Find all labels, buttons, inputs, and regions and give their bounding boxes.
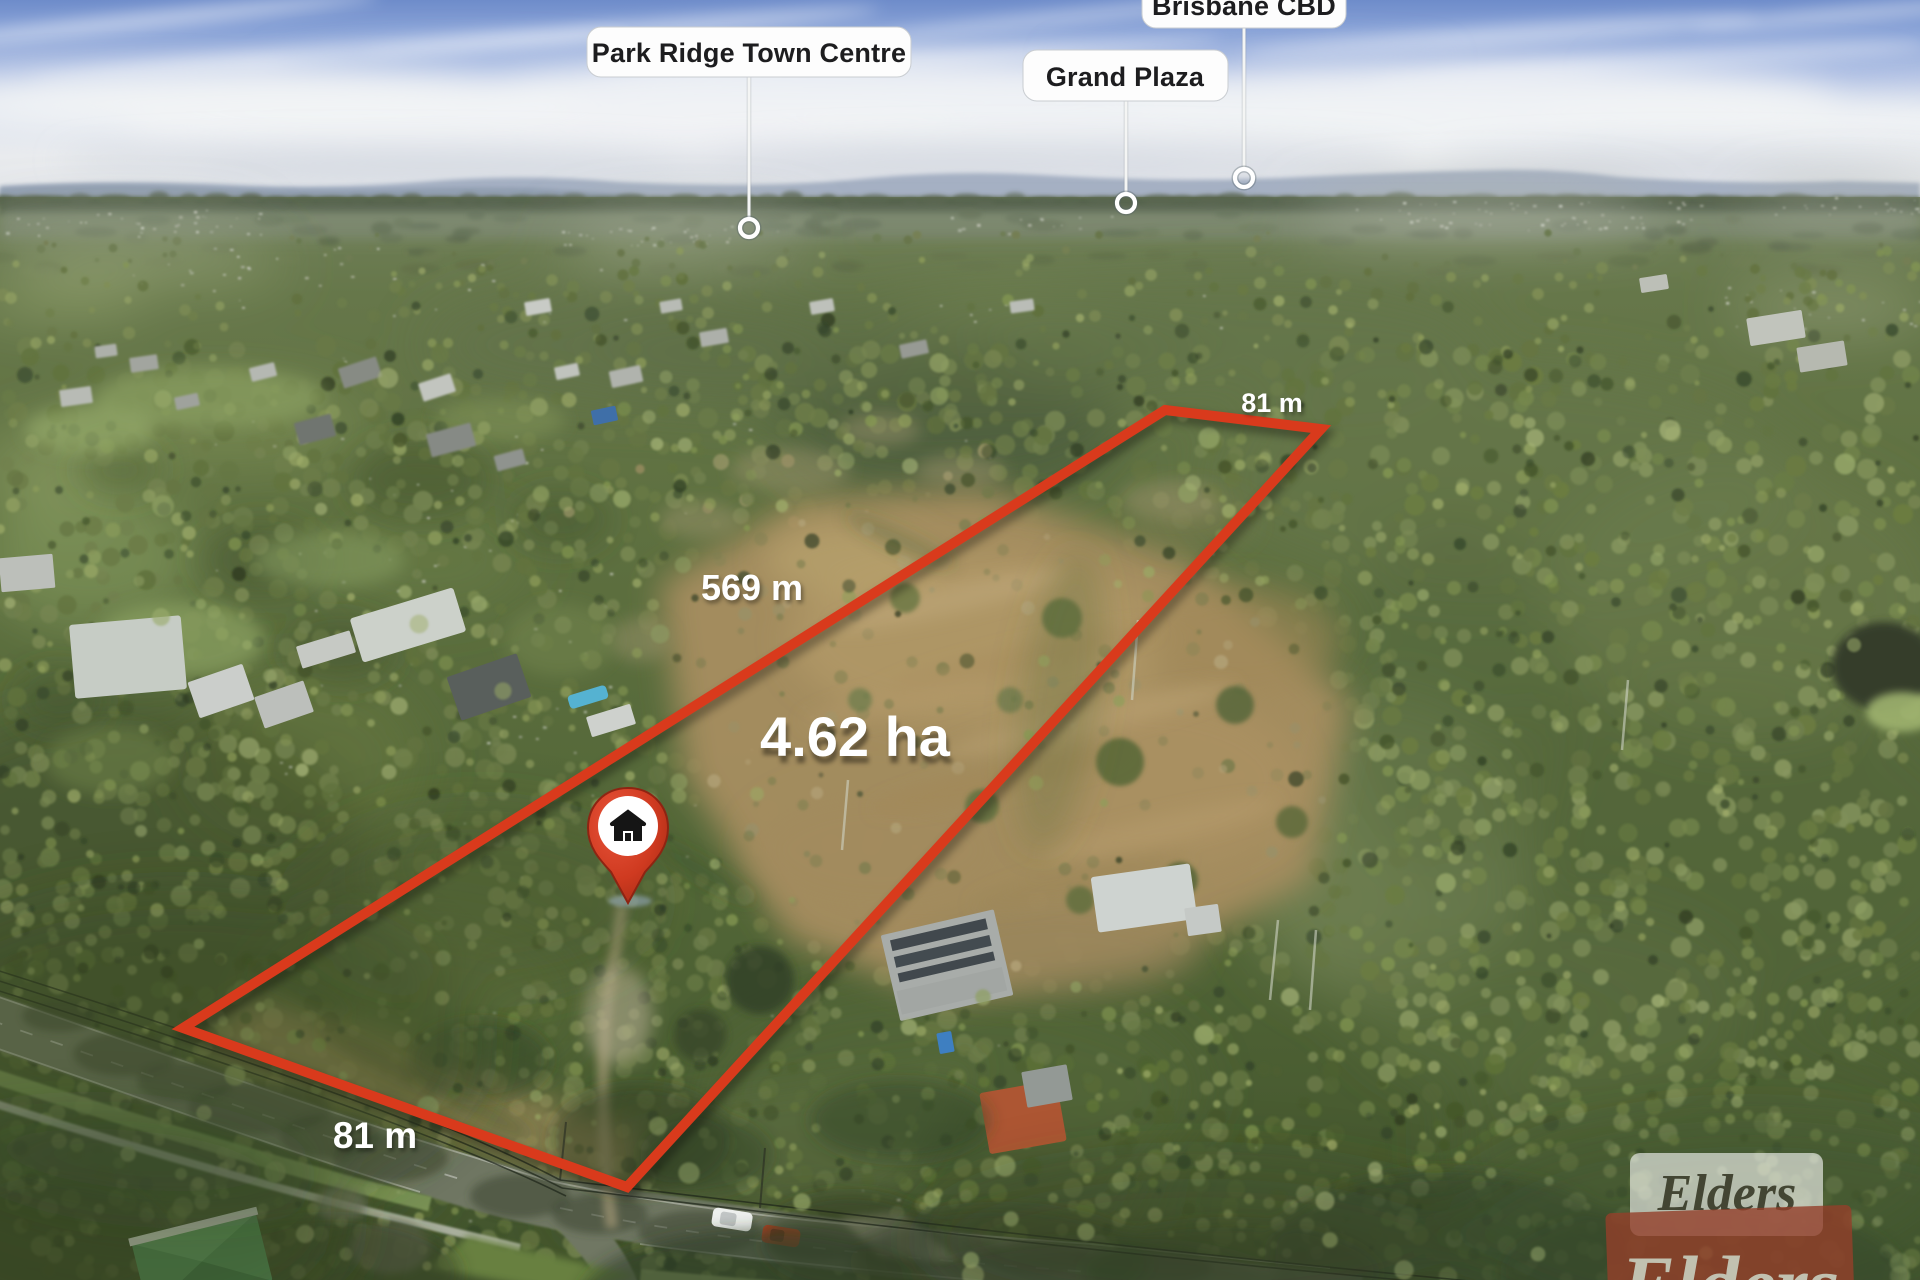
svg-text:Brisbane CBD: Brisbane CBD (1152, 0, 1336, 21)
svg-text:Park Ridge Town Centre: Park Ridge Town Centre (592, 38, 906, 68)
svg-text:Grand Plaza: Grand Plaza (1046, 62, 1205, 92)
svg-text:81 m: 81 m (333, 1115, 417, 1156)
svg-text:4.62 ha: 4.62 ha (760, 705, 951, 768)
svg-text:569 m: 569 m (701, 567, 803, 608)
svg-text:Elders: Elders (1620, 1239, 1840, 1280)
svg-text:81 m: 81 m (1241, 388, 1303, 418)
